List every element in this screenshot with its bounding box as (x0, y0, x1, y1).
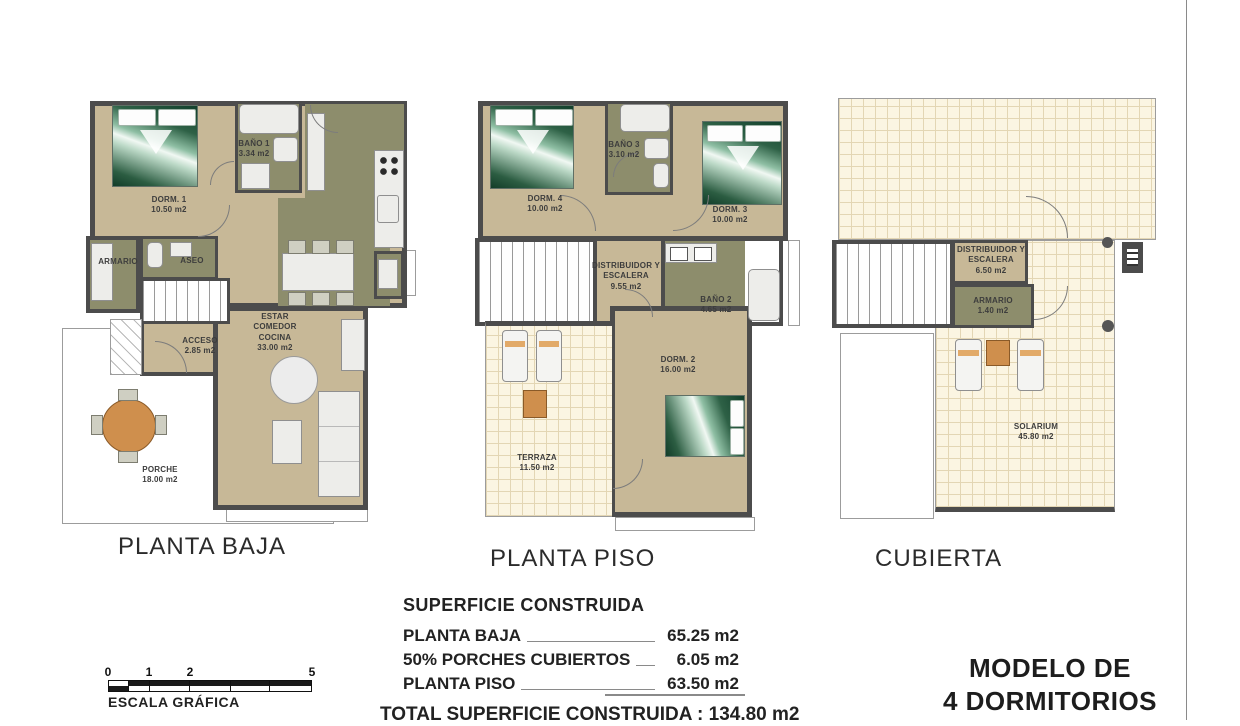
wc-icon (147, 242, 163, 268)
summary-title: SUPERFICIE CONSTRUIDA (403, 595, 644, 616)
plan-title: PLANTA PISO (490, 545, 655, 573)
wardrobe-icon (91, 243, 113, 301)
scale-tick: 5 (306, 665, 318, 679)
aseo-basin-icon (170, 242, 192, 257)
sun-lounger (502, 330, 528, 382)
kitchen-sink-icon (377, 195, 399, 223)
bathtub-icon (239, 104, 299, 134)
roof-post-icon (1102, 237, 1113, 248)
sofa (318, 391, 360, 497)
room-label: SOLARIUM 45.80 m2 (996, 422, 1076, 443)
room-label: DISTRIBUIDOR Y ESCALERA 6.50 m2 (956, 245, 1026, 276)
round-rug (270, 356, 318, 404)
plan-planta-piso: DORM. 4 10.00 m2 BAÑO 3 3.10 m2 DORM. 3 … (465, 93, 810, 573)
room-label: BAÑO 3 3.10 m2 (596, 140, 652, 161)
plan-cubierta: DISTRIBUIDOR Y ESCALERA 6.50 m2 ARMARIO … (830, 93, 1190, 573)
plan-planta-baja: DORM. 1 10.50 m2 BAÑO 1 3.34 m2 ARMARIO … (60, 93, 440, 568)
chimney-icon (1122, 242, 1143, 273)
entry-steps (110, 319, 142, 375)
scale-label: ESCALA GRÁFICA (108, 694, 240, 710)
lower-left-outline (840, 333, 934, 519)
summary-table: PLANTA BAJA 65.25 m2 50% PORCHES CUBIERT… (403, 622, 739, 694)
stairs (475, 238, 597, 326)
plan-title: CUBIERTA (875, 545, 1002, 573)
room-label: ARMARIO 1.40 m2 (958, 296, 1028, 317)
sun-lounger (536, 330, 562, 382)
room-label: ACCESO 2.85 m2 (164, 336, 236, 357)
double-sink-counter (665, 243, 717, 263)
summary-row: 50% PORCHES CUBIERTOS 6.05 m2 (403, 646, 739, 670)
room-label: BAÑO 2 4.65 m2 (686, 295, 746, 316)
summary-row: PLANTA BAJA 65.25 m2 (403, 622, 739, 646)
room-label: TERRAZA 11.50 m2 (504, 453, 570, 474)
shower-tray-icon (241, 163, 270, 189)
bed-dorm2 (665, 395, 745, 457)
sun-lounger (1017, 339, 1044, 391)
floorplan-sheet: { "palette": { "floor_beige": "#c7b897",… (0, 0, 1240, 720)
plan-title: PLANTA BAJA (118, 533, 286, 561)
room-label: DORM. 3 10.00 m2 (695, 205, 765, 226)
right-ledge (788, 240, 800, 326)
leader-line (636, 665, 655, 666)
room-label: BAÑO 1 3.34 m2 (224, 139, 284, 160)
sun-lounger (955, 339, 982, 391)
dining-table (282, 253, 354, 291)
roof-terrace (838, 98, 1156, 240)
summary-total: TOTAL SUPERFICIE CONSTRUIDA : 134.80 m2 (380, 704, 800, 726)
room-label: PORCHE 18.00 m2 (124, 465, 196, 486)
side-table (986, 340, 1010, 366)
stairs (832, 240, 954, 328)
model-title: MODELO DE 4 DORMITORIOS (930, 652, 1170, 717)
total-rule (605, 694, 745, 696)
bottom-outline (615, 517, 755, 531)
summary-row: PLANTA PISO 63.50 m2 (403, 670, 739, 694)
scale-tick: 1 (143, 665, 155, 679)
wc-icon (653, 163, 669, 188)
bed-dorm4 (490, 105, 574, 189)
leader-line (521, 689, 655, 690)
stairs (140, 278, 230, 324)
side-table (523, 390, 547, 418)
bathtub2-icon (748, 269, 780, 321)
living-bottom-outline (226, 508, 368, 522)
room-label: DORM. 1 10.50 m2 (129, 195, 209, 216)
bathtub-icon (620, 104, 670, 132)
fridge-icon (378, 259, 398, 289)
room-label: DISTRIBUIDOR Y ESCALERA 9.55 m2 (590, 261, 662, 292)
leader-line (527, 641, 655, 642)
room-label: ESTAR COMEDOR COCINA 33.00 m2 (246, 312, 304, 354)
porch-table (102, 399, 156, 453)
chaise (341, 319, 365, 371)
scale-tick: 0 (102, 665, 114, 679)
stove-icon (377, 154, 401, 178)
bed-dorm3 (702, 121, 782, 205)
room-label: DORM. 4 10.00 m2 (510, 194, 580, 215)
bed-dorm1 (112, 105, 198, 187)
roof-post-icon (1102, 320, 1114, 332)
scale-bar (108, 680, 312, 692)
room-label: ASEO (164, 256, 220, 266)
scale-tick: 2 (184, 665, 196, 679)
coffee-table (272, 420, 302, 464)
room-label: ARMARIO (89, 257, 147, 267)
room-label: DORM. 2 16.00 m2 (643, 355, 713, 376)
titleblock-border (1186, 0, 1187, 720)
